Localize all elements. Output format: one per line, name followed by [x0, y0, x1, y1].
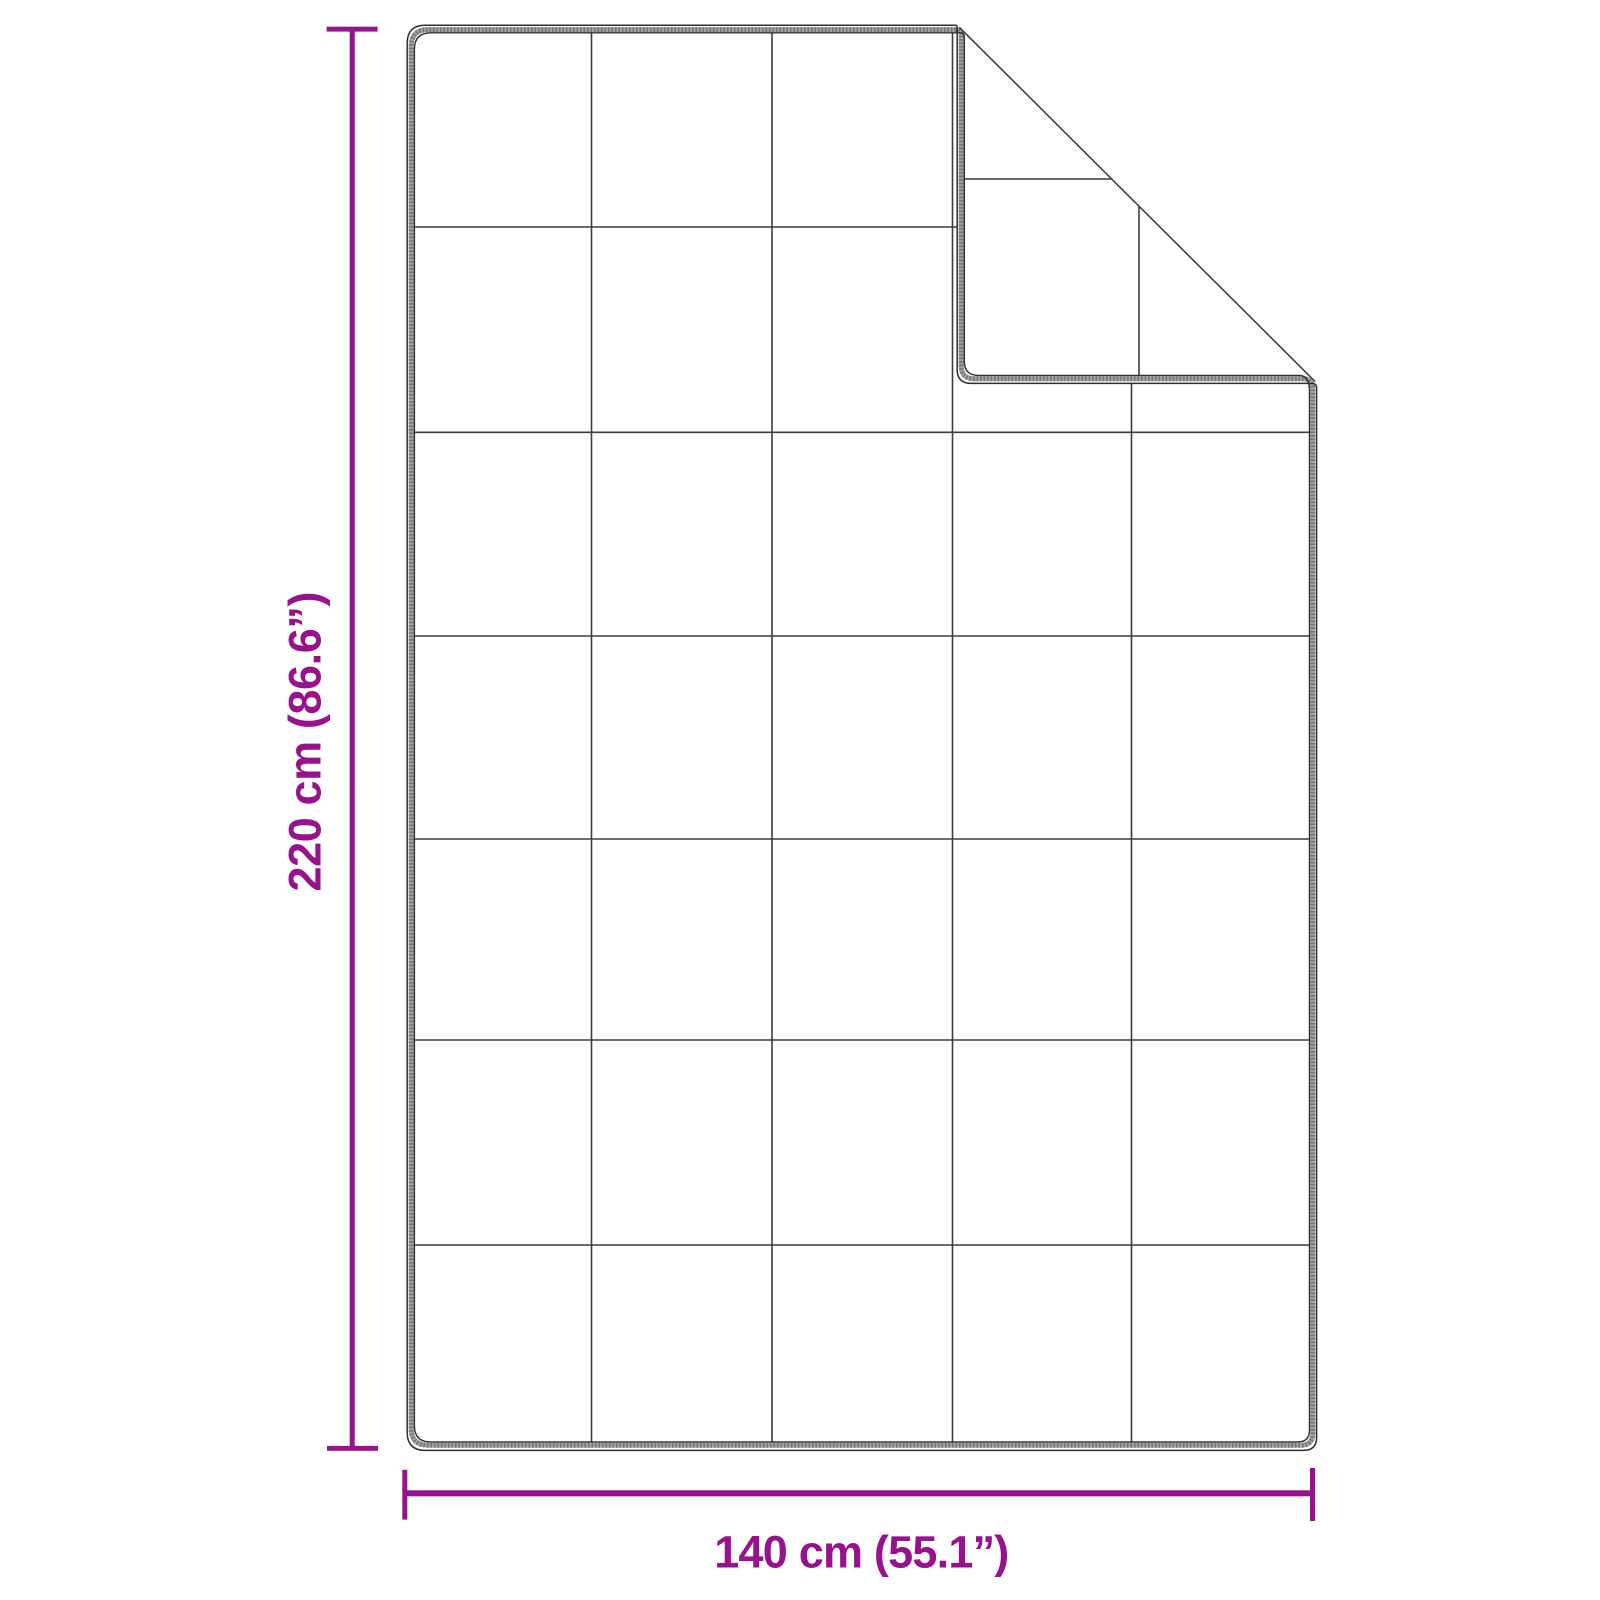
svg-text:140 cm (55.1”): 140 cm (55.1”) [714, 1526, 1009, 1577]
svg-text:220 cm (86.6”): 220 cm (86.6”) [280, 592, 331, 892]
